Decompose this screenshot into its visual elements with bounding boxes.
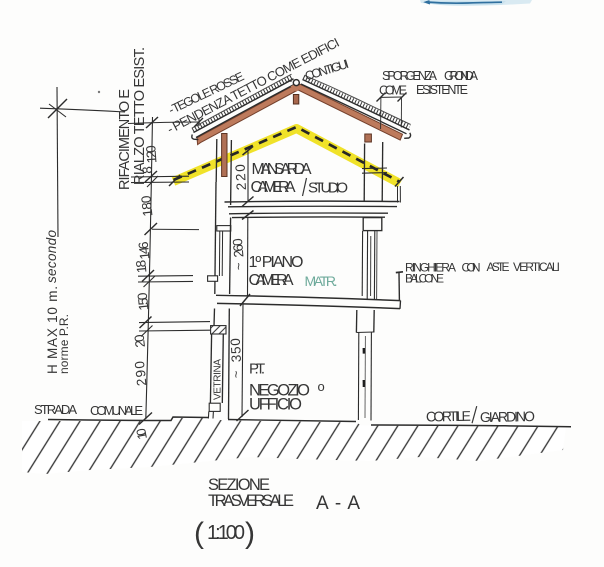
svg-text:20: 20 — [132, 334, 148, 348]
svg-text:~: ~ — [228, 370, 243, 379]
svg-text:1:100: 1:100 — [207, 522, 245, 544]
svg-text:UFFICIO: UFFICIO — [249, 396, 302, 414]
svg-text:COMUNALE: COMUNALE — [90, 403, 143, 418]
svg-text:120: 120 — [143, 145, 159, 164]
svg-text:ESISTENTE: ESISTENTE — [416, 83, 468, 97]
svg-text:P.T.: P.T. — [249, 361, 265, 378]
svg-text:~: ~ — [231, 262, 246, 271]
svg-text:18: 18 — [133, 259, 149, 273]
svg-text:150: 150 — [135, 292, 152, 311]
svg-text:GRONDA: GRONDA — [444, 69, 479, 83]
svg-text:(: ( — [194, 517, 204, 550]
svg-text:220: 220 — [233, 164, 249, 191]
svg-text:SPORGENZA: SPORGENZA — [382, 69, 438, 83]
svg-text:CAMERA: CAMERA — [249, 272, 294, 289]
svg-text:VERTICALI: VERTICALI — [513, 260, 560, 274]
svg-text:GIARDINO: GIARDINO — [480, 408, 535, 425]
svg-text:BALCONE: BALCONE — [405, 272, 444, 286]
svg-text:CORTILE: CORTILE — [426, 408, 471, 425]
svg-text:): ) — [245, 517, 255, 550]
svg-text:1º PIANO: 1º PIANO — [249, 254, 304, 271]
svg-text:260: 260 — [230, 238, 247, 258]
svg-text:MANSARDA: MANSARDA — [252, 161, 312, 178]
svg-text:8: 8 — [140, 166, 155, 175]
svg-text:TRASVERSALE: TRASVERSALE — [208, 492, 294, 510]
svg-text:350: 350 — [228, 338, 244, 363]
svg-text:A - A: A - A — [316, 493, 360, 514]
svg-text:secondo: secondo — [44, 230, 59, 283]
svg-text:STRADA: STRADA — [34, 402, 77, 417]
svg-text:180: 180 — [138, 195, 155, 217]
svg-text:146: 146 — [136, 241, 153, 260]
svg-text:VETRINA: VETRINA — [213, 359, 224, 400]
svg-text:290: 290 — [132, 360, 150, 386]
svg-text:MATR.: MATR. — [305, 273, 338, 289]
svg-text:norme P.R.: norme P.R. — [57, 314, 71, 374]
svg-text:CON: CON — [462, 261, 481, 275]
svg-text:o: o — [318, 379, 325, 394]
svg-text:CAMERA: CAMERA — [251, 179, 296, 196]
svg-text:ASTE: ASTE — [487, 260, 510, 274]
svg-text:STUDIO: STUDIO — [308, 180, 348, 197]
svg-text:COME: COME — [379, 84, 407, 98]
svg-text:RIFACIMENTO E: RIFACIMENTO E — [117, 89, 133, 190]
